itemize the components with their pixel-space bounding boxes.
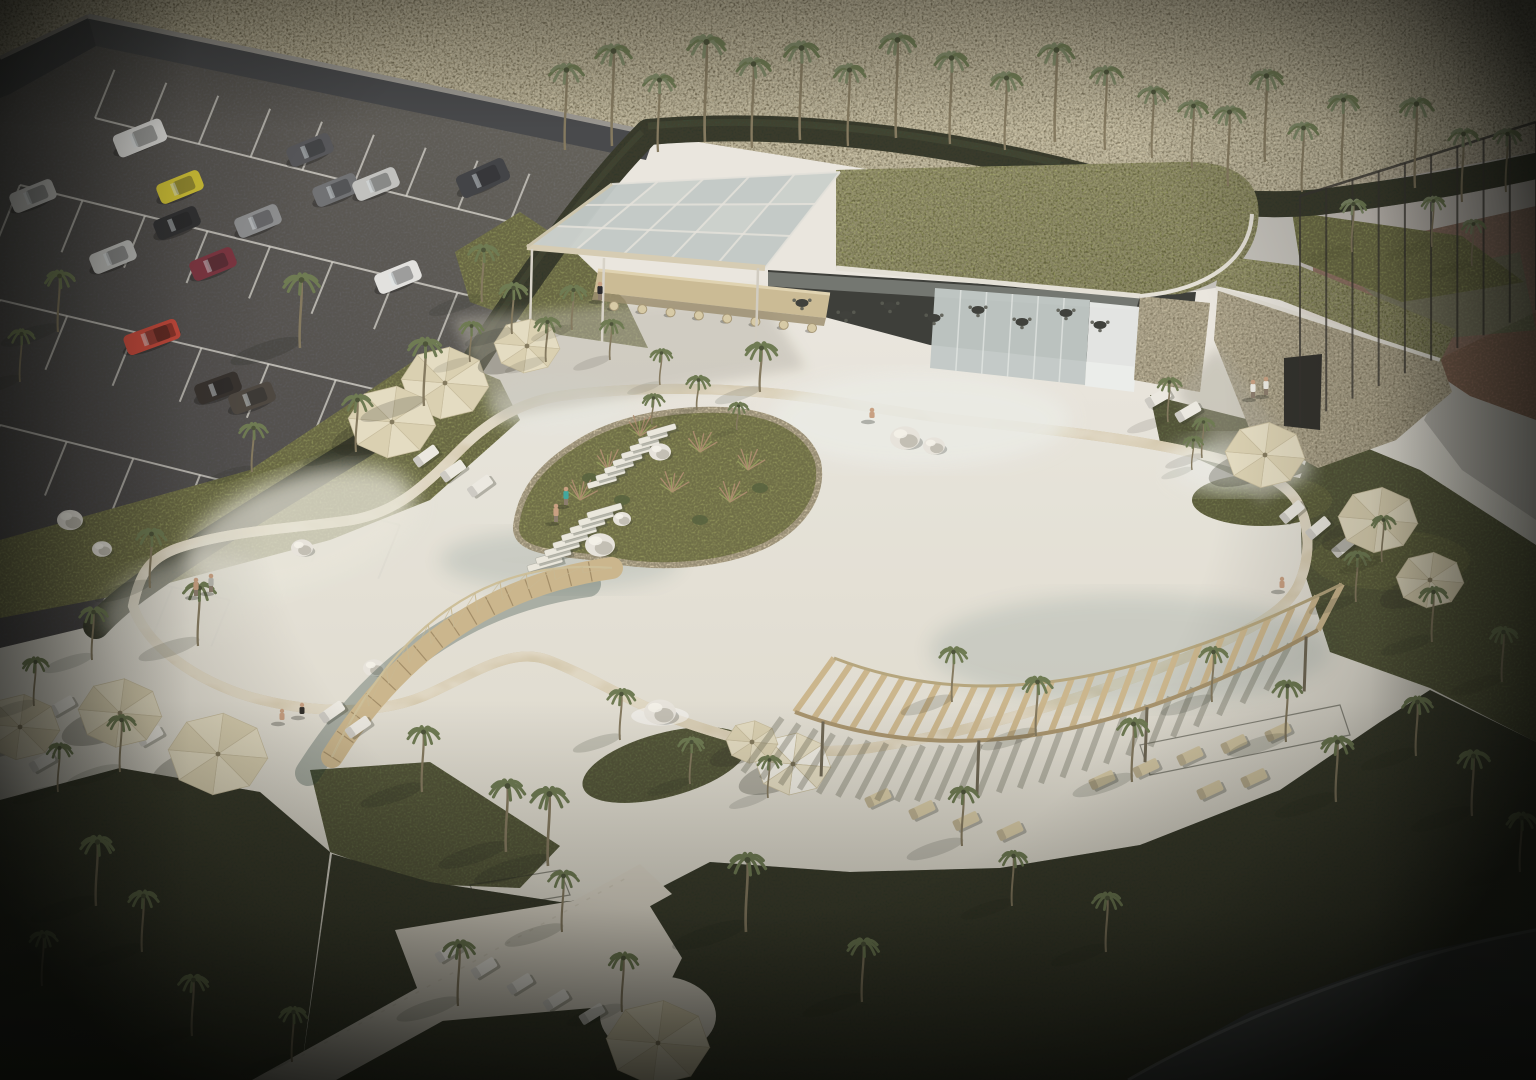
vignette-left	[0, 0, 190, 1080]
vignette-top	[0, 0, 1536, 130]
render-viewport	[0, 0, 1536, 1080]
vignette-right	[1370, 0, 1536, 1080]
vignette-bottom	[0, 700, 1536, 1080]
scene	[0, 0, 1536, 1080]
